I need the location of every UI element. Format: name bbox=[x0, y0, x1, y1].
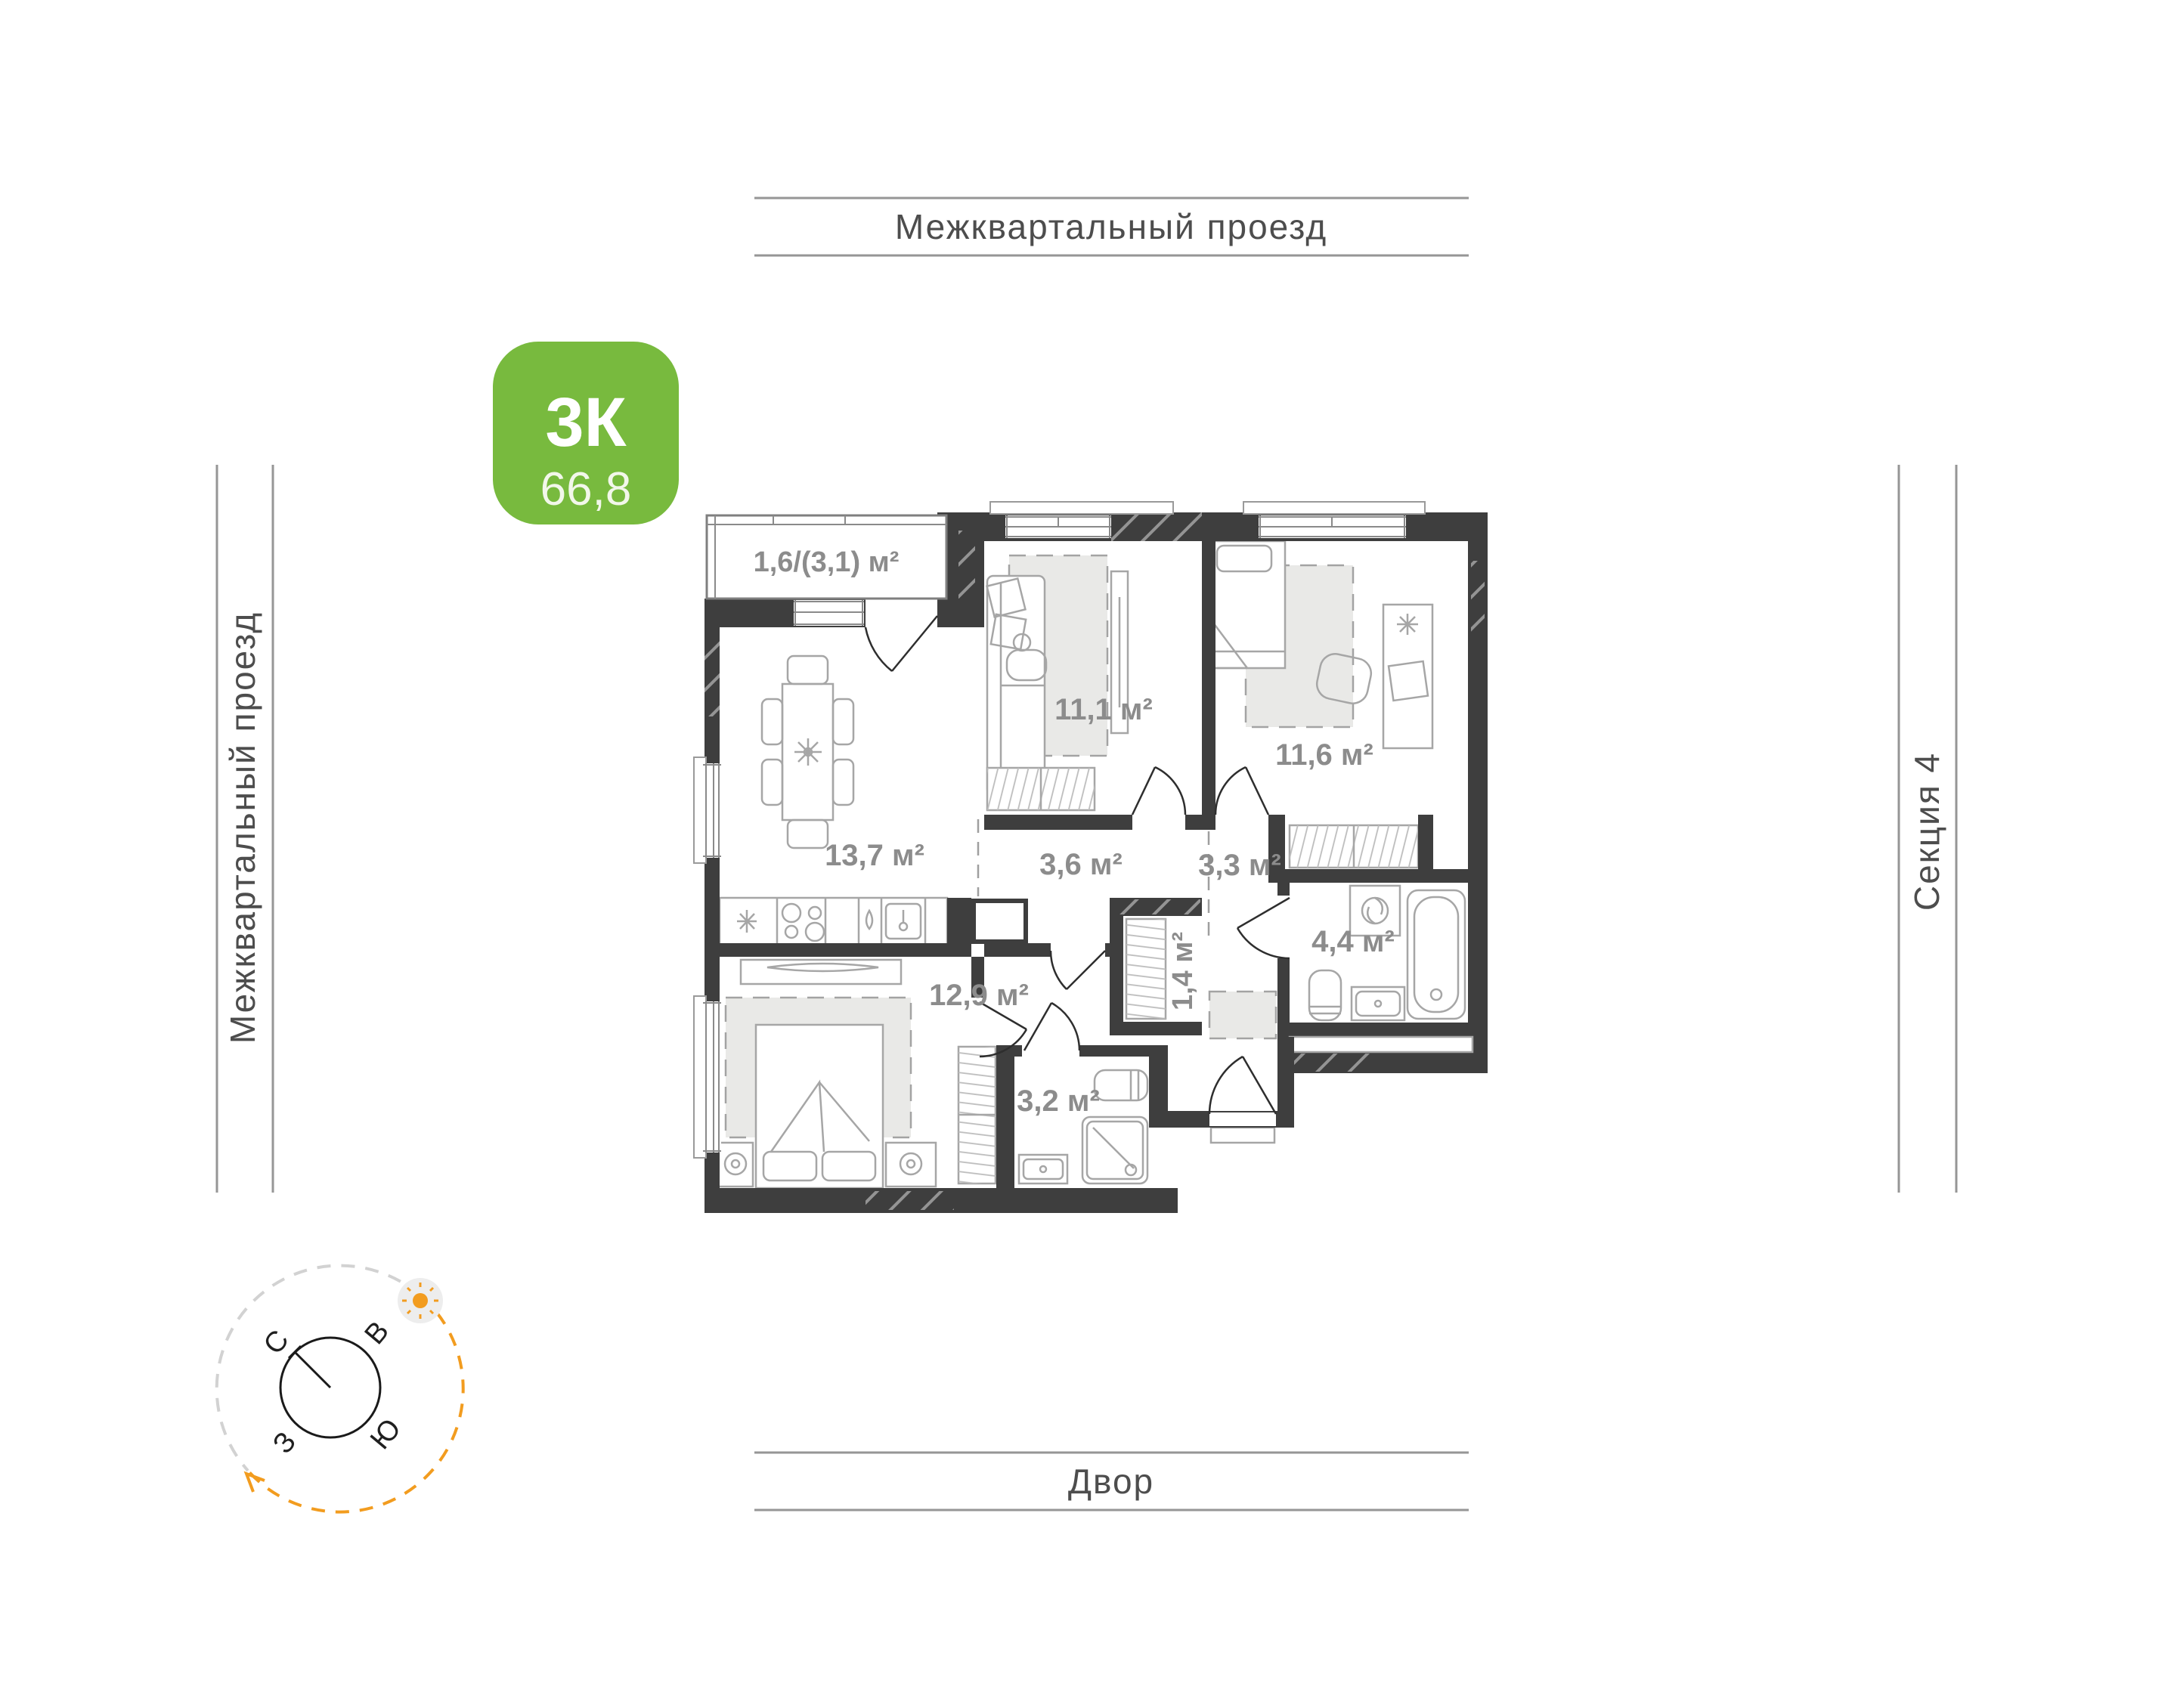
wall-bathroom-bottom bbox=[1277, 1023, 1488, 1037]
street-top-label: Межквартальный проезд bbox=[895, 207, 1327, 246]
opening-corridor bbox=[1051, 943, 1105, 957]
nightstand bbox=[718, 1143, 753, 1187]
flower-icon bbox=[794, 738, 822, 766]
window-bedroom-3-left bbox=[694, 996, 721, 1158]
wardrobe-bedroom-3 bbox=[958, 1047, 996, 1184]
street-bottom: Двор bbox=[754, 1453, 1469, 1510]
opening-balcony-door bbox=[866, 599, 937, 627]
compass: С В З Ю bbox=[212, 1266, 463, 1512]
shaft-hatch bbox=[1471, 561, 1485, 632]
closet-wardrobe bbox=[1126, 919, 1166, 1019]
sofa bbox=[987, 576, 1045, 795]
shaft-hatch-top bbox=[1111, 512, 1202, 541]
shaft-hatch bbox=[1285, 1054, 1374, 1072]
wall-corridor-bottom-b bbox=[1105, 943, 1123, 957]
wall-corridor-bottom-a bbox=[984, 943, 1051, 957]
opening-shower-room bbox=[1022, 1045, 1079, 1057]
compass-north: С bbox=[258, 1324, 296, 1360]
label-corridor: 3,6 м² bbox=[1039, 848, 1123, 881]
wardrobe-bedroom-1 bbox=[987, 768, 1095, 810]
chair bbox=[762, 699, 782, 744]
compass-east: В bbox=[359, 1316, 395, 1351]
street-top: Межквартальный проезд bbox=[754, 198, 1469, 255]
door-bedroom-2 bbox=[1215, 767, 1268, 815]
chair bbox=[762, 760, 782, 805]
street-right: Секция 4 bbox=[1899, 465, 1956, 1193]
wall-bedroom-divider bbox=[1202, 541, 1215, 830]
unit-badge: 3К 66,8 bbox=[493, 342, 679, 524]
wall-corridor-top-b bbox=[1185, 815, 1202, 830]
shaft-hatch bbox=[866, 1191, 954, 1210]
double-bed bbox=[756, 1025, 883, 1188]
desk bbox=[1383, 605, 1432, 748]
opening-bedroom-1 bbox=[1132, 815, 1185, 830]
compass-arrow bbox=[246, 1474, 265, 1492]
window-kitchen bbox=[794, 600, 864, 626]
opening-entrance bbox=[1209, 1112, 1276, 1126]
unit-badge-area: 66,8 bbox=[540, 463, 632, 515]
window-living-left bbox=[694, 757, 721, 863]
door-bedroom-1 bbox=[1132, 767, 1185, 815]
wall-shower-left bbox=[996, 1057, 1014, 1188]
label-kitchen-living: 13,7 м² bbox=[825, 839, 924, 872]
floor-plan: 1,6/(3,1) м² 11,1 м² 11,6 м² 13,7 м² 3,6… bbox=[694, 502, 1488, 1213]
window-bedroom-2 bbox=[1243, 502, 1425, 538]
duct-strip bbox=[1290, 1037, 1472, 1052]
section-label: Секция 4 bbox=[1907, 752, 1946, 911]
floor-plan-canvas: Межквартальный проезд Межквартальный про… bbox=[0, 0, 2177, 1708]
label-bedroom-3: 12,9 м² bbox=[929, 979, 1029, 1012]
bathtub-icon bbox=[1407, 890, 1465, 1019]
chair bbox=[833, 699, 853, 744]
sink-icon bbox=[1352, 987, 1404, 1020]
wardrobe-bedroom-2 bbox=[1290, 825, 1418, 868]
dining-table-set bbox=[762, 656, 853, 848]
chair bbox=[833, 760, 853, 805]
wall-kitchen-row bbox=[705, 943, 971, 957]
nightstand bbox=[886, 1143, 936, 1187]
compass-west: З bbox=[267, 1426, 302, 1460]
label-bedroom-2: 11,6 м² bbox=[1275, 738, 1373, 772]
wall-closet-left bbox=[1110, 916, 1123, 1034]
shaft-hatch bbox=[705, 632, 720, 716]
compass-south: Ю bbox=[364, 1413, 407, 1456]
label-bedroom-1: 11,1 м² bbox=[1054, 693, 1153, 726]
tv-console bbox=[741, 960, 901, 984]
label-closet: 1,4 м² bbox=[1167, 932, 1199, 1010]
wall-closet-bottom bbox=[1110, 1022, 1202, 1035]
carpet-hall bbox=[1209, 992, 1276, 1038]
door-shower-room bbox=[1024, 1003, 1079, 1050]
wall-corridor-top-a bbox=[984, 815, 1132, 830]
single-bed bbox=[1211, 541, 1285, 668]
toilet-icon bbox=[1095, 1070, 1147, 1100]
label-balcony: 1,6/(3,1) м² bbox=[754, 546, 900, 578]
sun-icon bbox=[398, 1278, 443, 1323]
wall-shower-right bbox=[1149, 1057, 1168, 1128]
kitchen-counter bbox=[720, 898, 947, 945]
street-left-label: Межквартальный проезд bbox=[223, 611, 262, 1044]
floor-plan-page: Межквартальный проезд Межквартальный про… bbox=[0, 0, 2177, 1708]
toilet-icon bbox=[1309, 970, 1341, 1020]
opening-bedroom-2 bbox=[1215, 815, 1268, 830]
wall-bathroom-top bbox=[1268, 869, 1488, 883]
entrance-threshold bbox=[1211, 1128, 1274, 1143]
vent-duct-box bbox=[974, 901, 1026, 942]
sink-icon bbox=[1019, 1155, 1067, 1184]
opening-bathroom bbox=[1277, 896, 1290, 958]
street-left: Межквартальный проезд bbox=[217, 465, 273, 1193]
unit-badge-rooms: 3К bbox=[545, 384, 627, 461]
wall-niche-right bbox=[1418, 815, 1433, 869]
plant-icon bbox=[1397, 614, 1418, 635]
yard-label: Двор bbox=[1068, 1462, 1154, 1501]
wall-kitchen-column bbox=[947, 898, 971, 957]
shower-tray-icon bbox=[1082, 1117, 1147, 1184]
label-shower-room: 3,2 м² bbox=[1017, 1085, 1100, 1118]
door-entrance bbox=[1209, 1057, 1276, 1114]
label-bathroom: 4,4 м² bbox=[1311, 925, 1395, 958]
chair bbox=[788, 820, 828, 848]
shaft-hatch bbox=[1111, 899, 1200, 914]
chair bbox=[788, 656, 828, 684]
label-hall: 3,3 м² bbox=[1198, 849, 1281, 882]
